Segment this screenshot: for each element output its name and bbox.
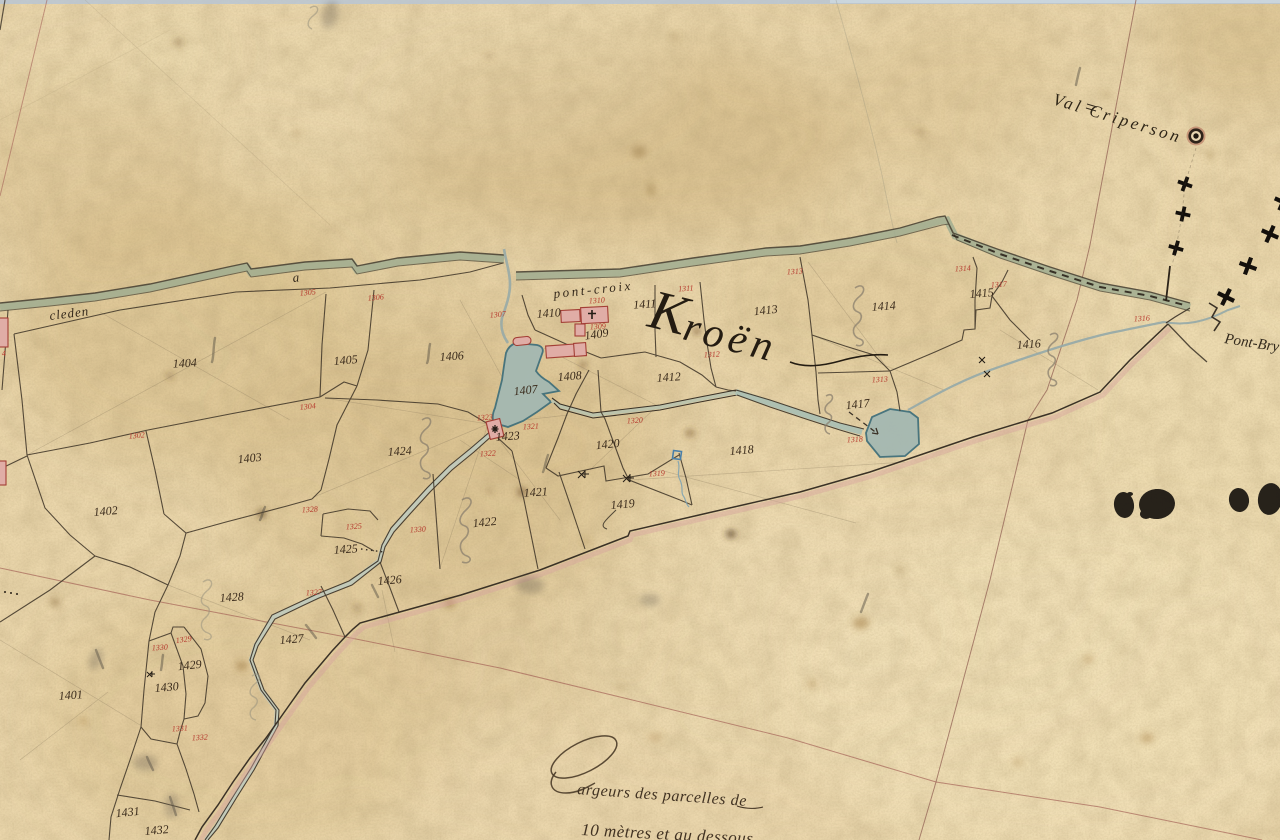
- svg-text:1421: 1421: [523, 484, 548, 500]
- svg-text:1412: 1412: [656, 369, 681, 385]
- svg-text:1325: 1325: [346, 521, 363, 531]
- svg-text:1307: 1307: [489, 309, 507, 319]
- svg-text:1302: 1302: [128, 430, 145, 440]
- svg-text:1414: 1414: [871, 298, 896, 314]
- svg-text:1321: 1321: [523, 421, 540, 431]
- svg-text:1422: 1422: [472, 514, 497, 530]
- svg-text:1304: 1304: [299, 401, 316, 411]
- svg-text:1406: 1406: [439, 348, 464, 364]
- svg-text:1413: 1413: [753, 302, 778, 318]
- svg-text:1427: 1427: [279, 631, 305, 647]
- svg-text:1410: 1410: [536, 305, 561, 321]
- svg-text:1327: 1327: [306, 587, 324, 597]
- svg-text:1401: 1401: [58, 687, 83, 703]
- svg-text:1322: 1322: [480, 448, 497, 458]
- svg-text:1407: 1407: [513, 382, 539, 399]
- svg-text:1332: 1332: [192, 732, 209, 742]
- svg-text:1416: 1416: [1016, 336, 1041, 352]
- svg-text:1317: 1317: [991, 279, 1009, 289]
- svg-text:1316: 1316: [1134, 313, 1151, 323]
- svg-text:1309: 1309: [590, 321, 607, 331]
- svg-text:1330: 1330: [152, 642, 169, 652]
- svg-text:1405: 1405: [333, 352, 358, 368]
- svg-text:1428: 1428: [219, 589, 244, 605]
- svg-text:1426: 1426: [377, 572, 402, 588]
- svg-text:1318: 1318: [847, 434, 864, 444]
- svg-text:1314: 1314: [955, 263, 972, 273]
- svg-text:1313: 1313: [872, 374, 889, 384]
- svg-text:1305: 1305: [299, 287, 316, 297]
- svg-text:1420: 1420: [595, 436, 620, 452]
- svg-text:1423: 1423: [495, 428, 520, 444]
- svg-text:1323: 1323: [477, 412, 494, 422]
- svg-text:1418: 1418: [729, 442, 754, 458]
- svg-text:1330: 1330: [410, 524, 427, 534]
- svg-text:1431: 1431: [115, 804, 140, 820]
- svg-text:1402: 1402: [93, 503, 118, 519]
- svg-text:1319: 1319: [649, 468, 666, 478]
- svg-text:1320: 1320: [627, 415, 644, 425]
- svg-text:1306: 1306: [367, 292, 384, 302]
- svg-text:1328: 1328: [302, 504, 319, 514]
- svg-text:1432: 1432: [144, 822, 169, 838]
- svg-text:1404: 1404: [172, 355, 197, 370]
- svg-text:1424: 1424: [387, 443, 412, 459]
- svg-text:1331: 1331: [172, 723, 189, 733]
- svg-text:1403: 1403: [237, 450, 262, 466]
- svg-text:1417: 1417: [845, 396, 871, 413]
- svg-text:1430: 1430: [154, 679, 179, 695]
- svg-text:4: 4: [2, 349, 7, 358]
- svg-text:1419: 1419: [610, 496, 635, 512]
- svg-text:1313: 1313: [787, 266, 804, 276]
- svg-text:1429: 1429: [177, 657, 202, 673]
- svg-text:1425: 1425: [333, 541, 358, 557]
- svg-text:1408: 1408: [557, 368, 582, 384]
